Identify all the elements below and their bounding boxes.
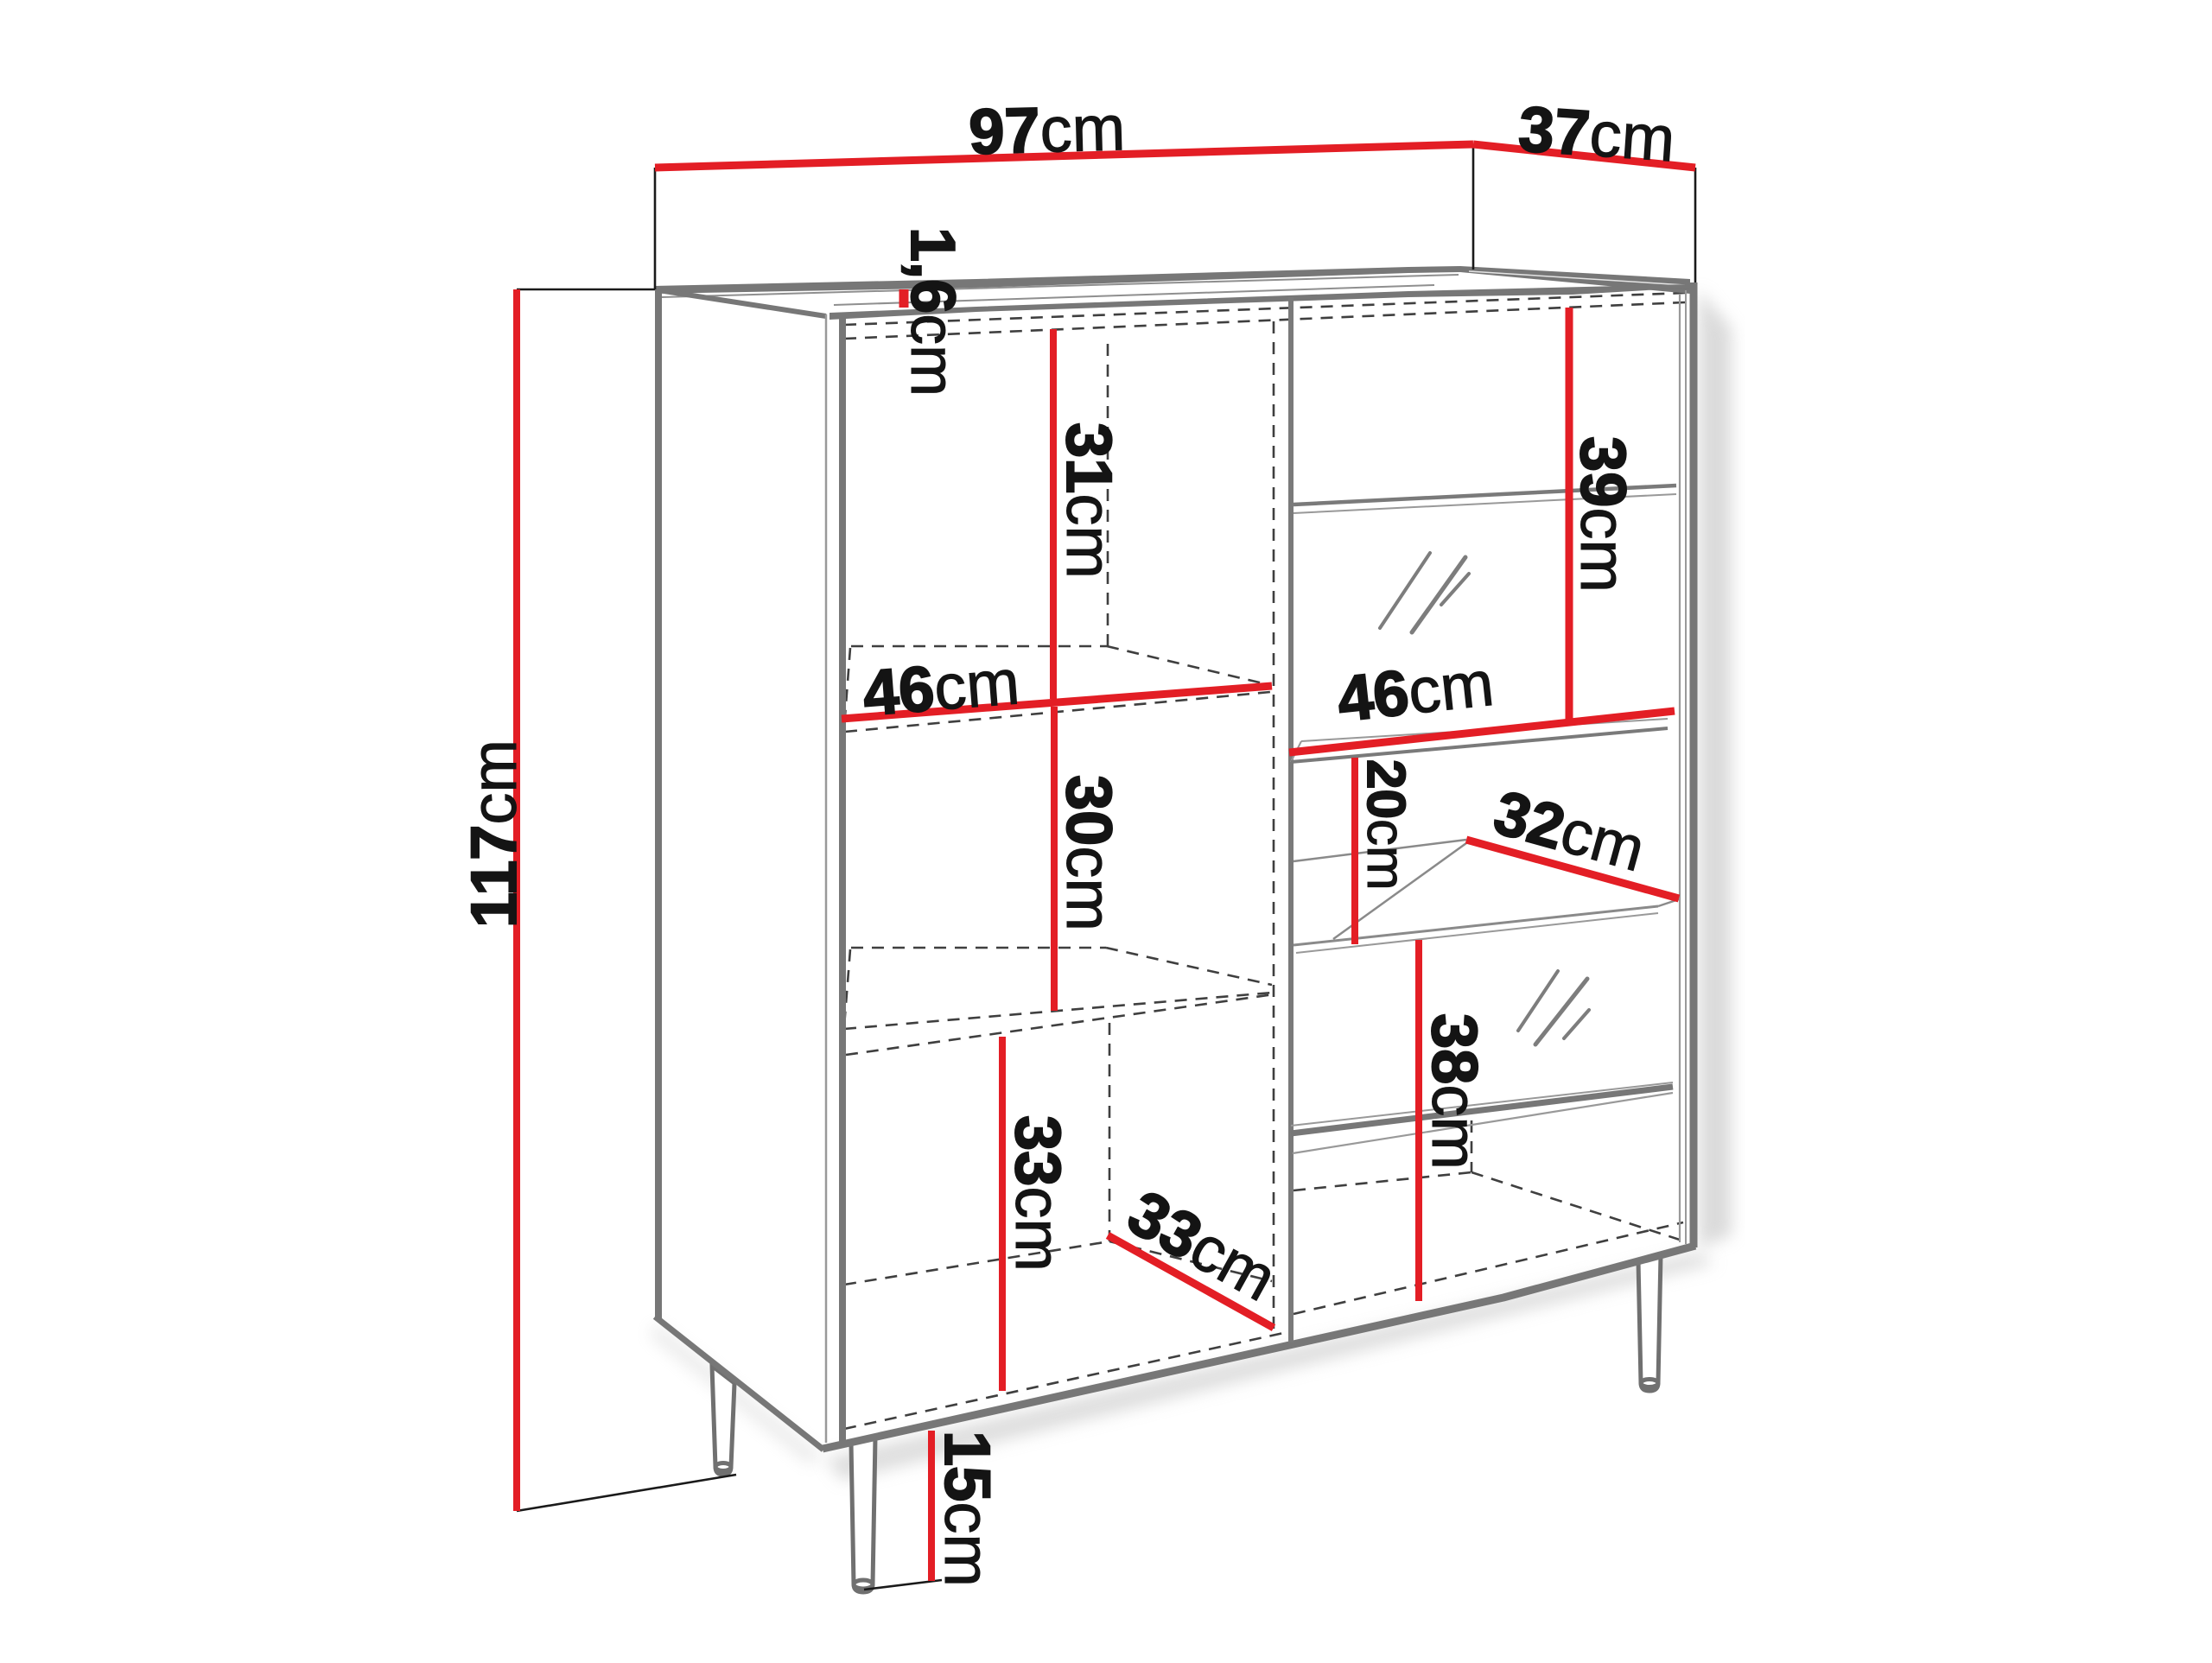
svg-text:38cm: 38cm [1419, 1013, 1491, 1170]
svg-text:15cm: 15cm [931, 1431, 1003, 1587]
svg-text:39cm: 39cm [1567, 436, 1639, 593]
svg-text:31cm: 31cm [1053, 422, 1125, 579]
svg-text:46cm: 46cm [861, 645, 1022, 729]
svg-text:33cm: 33cm [1002, 1115, 1074, 1272]
svg-text:117cm: 117cm [458, 739, 530, 928]
svg-text:37cm: 37cm [1516, 92, 1677, 175]
svg-text:30cm: 30cm [1053, 775, 1125, 931]
svg-text:1,6cm: 1,6cm [898, 227, 967, 397]
svg-text:20cm: 20cm [1356, 759, 1415, 891]
svg-text:97cm: 97cm [968, 92, 1126, 168]
